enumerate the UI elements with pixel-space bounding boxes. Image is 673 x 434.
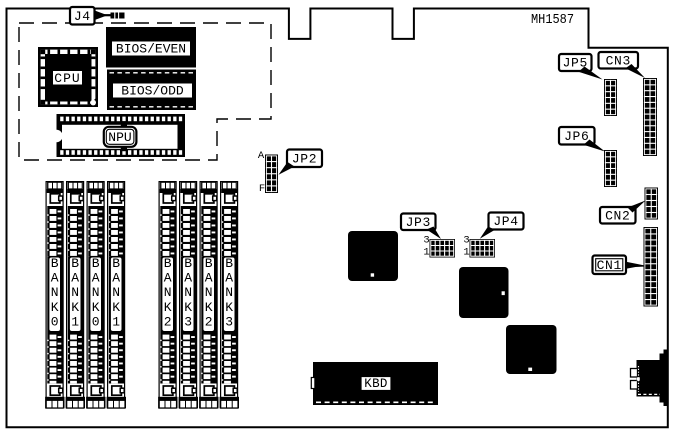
svg-text:A: A bbox=[258, 150, 265, 162]
svg-text:2: 2 bbox=[205, 314, 213, 329]
svg-text:CN1: CN1 bbox=[597, 258, 622, 273]
svg-text:BIOS/ODD: BIOS/ODD bbox=[121, 84, 184, 99]
svg-text:B: B bbox=[205, 256, 213, 271]
svg-text:A: A bbox=[71, 271, 79, 286]
svg-text:K: K bbox=[164, 300, 172, 315]
svg-text:1: 1 bbox=[423, 247, 429, 259]
svg-text:1: 1 bbox=[71, 314, 79, 329]
svg-text:N: N bbox=[205, 285, 213, 300]
svg-text:1: 1 bbox=[463, 247, 469, 259]
svg-text:B: B bbox=[164, 256, 172, 271]
svg-text:N: N bbox=[51, 285, 59, 300]
svg-text:MH1587: MH1587 bbox=[531, 13, 574, 28]
svg-text:1: 1 bbox=[112, 314, 120, 329]
svg-text:B: B bbox=[225, 256, 233, 271]
svg-text:JP3: JP3 bbox=[406, 215, 431, 230]
svg-text:N: N bbox=[71, 285, 79, 300]
svg-text:N: N bbox=[92, 285, 100, 300]
svg-text:A: A bbox=[225, 271, 233, 286]
svg-text:KBD: KBD bbox=[364, 377, 387, 391]
svg-text:JP6: JP6 bbox=[564, 129, 589, 144]
svg-text:J4: J4 bbox=[74, 9, 91, 24]
svg-text:K: K bbox=[92, 300, 100, 315]
svg-text:JP4: JP4 bbox=[493, 214, 518, 229]
svg-text:K: K bbox=[51, 300, 59, 315]
svg-text:K: K bbox=[205, 300, 213, 315]
svg-text:N: N bbox=[184, 285, 192, 300]
svg-text:A: A bbox=[184, 271, 192, 286]
svg-text:JP5: JP5 bbox=[563, 56, 588, 71]
svg-text:BIOS/EVEN: BIOS/EVEN bbox=[116, 42, 186, 57]
svg-text:CN2: CN2 bbox=[605, 208, 630, 223]
svg-text:JP2: JP2 bbox=[292, 151, 317, 166]
svg-text:K: K bbox=[71, 300, 79, 315]
svg-text:A: A bbox=[51, 271, 59, 286]
svg-text:CN3: CN3 bbox=[606, 53, 631, 68]
svg-text:K: K bbox=[225, 300, 233, 315]
svg-text:B: B bbox=[92, 256, 100, 271]
svg-text:NPU: NPU bbox=[108, 130, 131, 145]
svg-text:N: N bbox=[164, 285, 172, 300]
svg-text:A: A bbox=[92, 271, 100, 286]
svg-text:3: 3 bbox=[225, 314, 233, 329]
svg-text:K: K bbox=[112, 300, 120, 315]
svg-text:K: K bbox=[184, 300, 192, 315]
svg-text:F: F bbox=[259, 183, 265, 195]
svg-text:B: B bbox=[184, 256, 192, 271]
svg-text:0: 0 bbox=[92, 314, 100, 329]
svg-text:B: B bbox=[112, 256, 120, 271]
svg-text:3: 3 bbox=[423, 235, 429, 247]
svg-text:CPU: CPU bbox=[54, 71, 80, 86]
svg-text:3: 3 bbox=[184, 314, 192, 329]
svg-text:A: A bbox=[112, 271, 120, 286]
svg-text:A: A bbox=[164, 271, 172, 286]
svg-text:N: N bbox=[112, 285, 120, 300]
svg-text:0: 0 bbox=[51, 314, 59, 329]
svg-text:3: 3 bbox=[463, 235, 469, 247]
svg-text:N: N bbox=[225, 285, 233, 300]
svg-text:B: B bbox=[51, 256, 59, 271]
svg-text:A: A bbox=[205, 271, 213, 286]
svg-text:2: 2 bbox=[164, 314, 172, 329]
svg-text:B: B bbox=[71, 256, 79, 271]
